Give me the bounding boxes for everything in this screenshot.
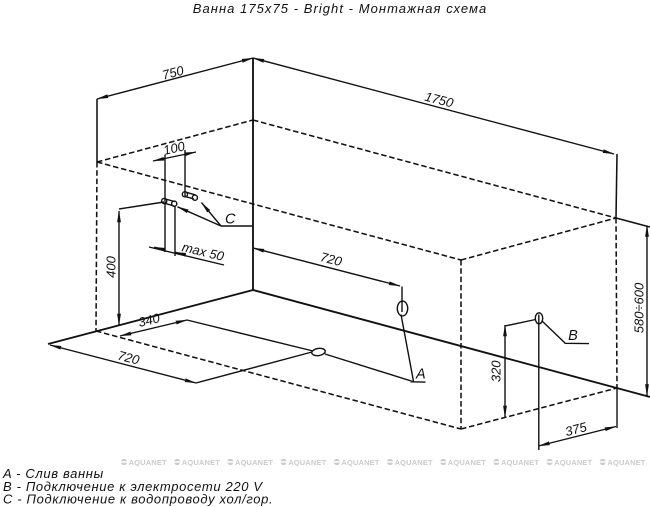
svg-text:AQUANET: AQUANET (129, 458, 167, 467)
svg-text:C - Подключение к водопроводу: C - Подключение к водопроводу хол/гор. (3, 492, 273, 507)
svg-text:AQUANET: AQUANET (288, 458, 326, 467)
svg-text:AQUANET: AQUANET (235, 458, 273, 467)
svg-text:AQUANET: AQUANET (501, 458, 539, 467)
svg-text:AQUANET: AQUANET (607, 458, 645, 467)
svg-text:A: A (415, 367, 426, 383)
svg-text:375: 375 (563, 419, 589, 439)
svg-text:AQUANET: AQUANET (395, 458, 433, 467)
svg-text:1750: 1750 (423, 89, 455, 111)
svg-text:B: B (568, 328, 578, 344)
svg-text:AQUANET: AQUANET (554, 458, 592, 467)
svg-text:320: 320 (489, 360, 504, 382)
svg-text:Ванна 175x75 - Bright - Монтаж: Ванна 175x75 - Bright - Монтажная схема (193, 1, 488, 16)
svg-text:AQUANET: AQUANET (182, 458, 220, 467)
svg-text:720: 720 (116, 348, 142, 368)
svg-text:580÷600: 580÷600 (632, 282, 647, 333)
svg-text:400: 400 (104, 255, 119, 277)
svg-text:750: 750 (160, 62, 186, 82)
svg-text:AQUANET: AQUANET (341, 458, 379, 467)
svg-text:AQUANET: AQUANET (448, 458, 486, 467)
svg-text:C: C (225, 212, 236, 228)
